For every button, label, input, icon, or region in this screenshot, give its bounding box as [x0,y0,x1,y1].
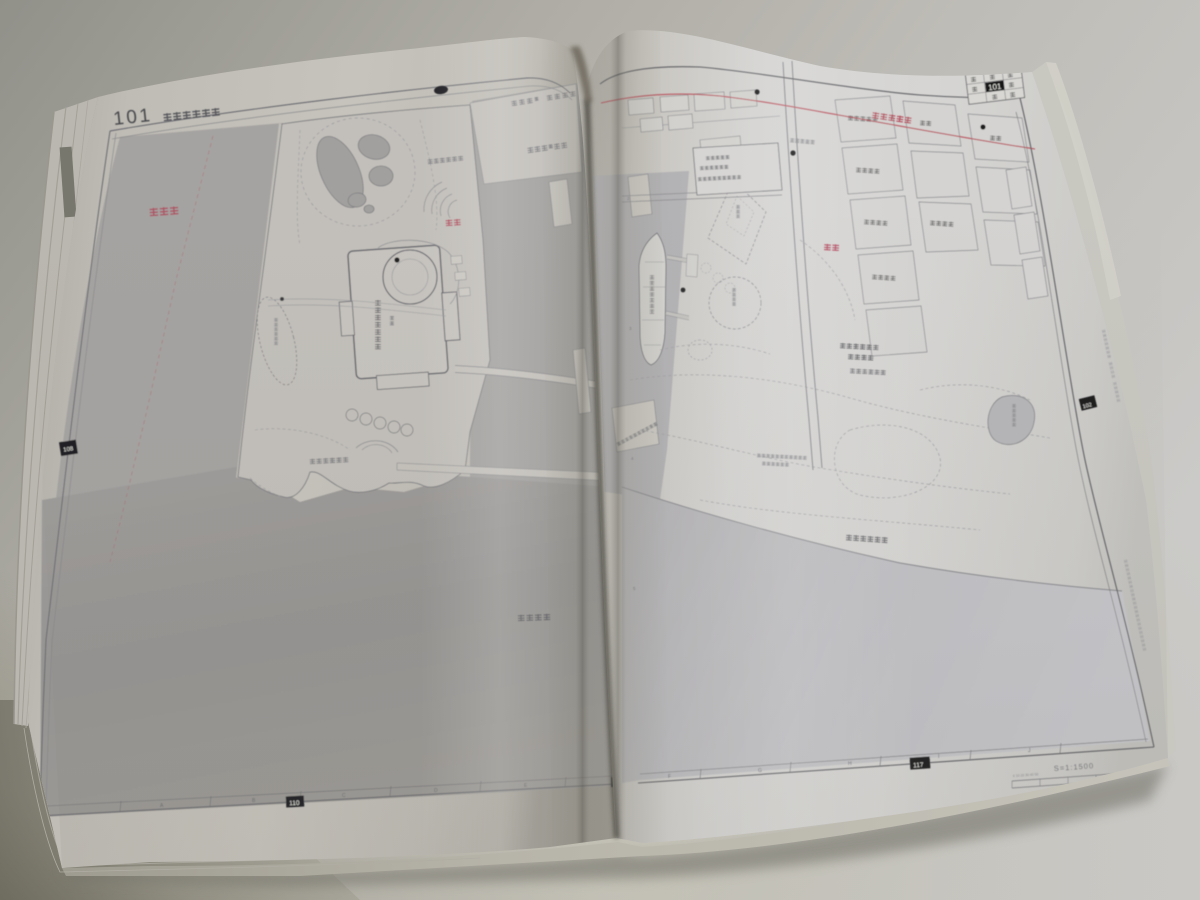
svg-text:101: 101 [988,82,1003,93]
svg-text:101: 101 [112,105,153,130]
